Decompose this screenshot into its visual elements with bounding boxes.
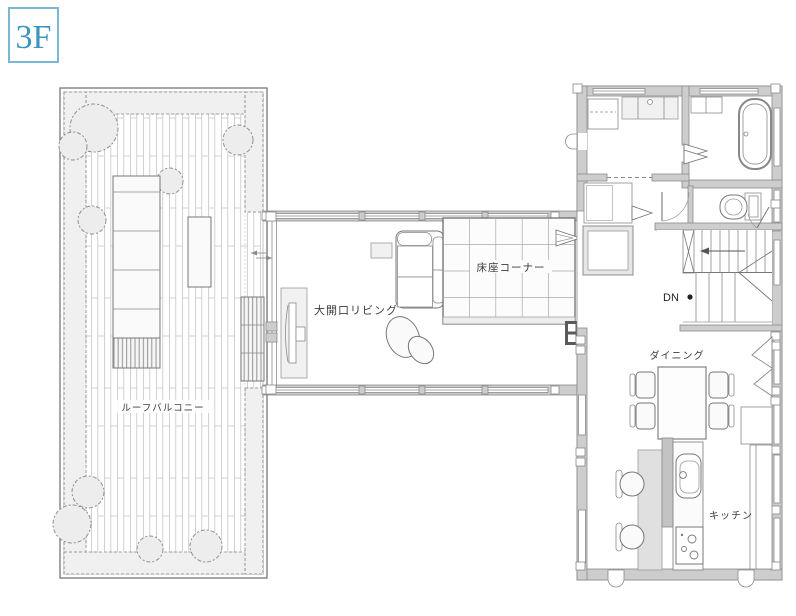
dn-dot (687, 294, 692, 299)
door-bump-icon (738, 570, 754, 587)
bath-counter-icon (691, 97, 722, 113)
staircase: DN (657, 230, 782, 331)
dining-table-icon (658, 367, 706, 439)
dining-chair-icon (630, 372, 655, 398)
floor-seat-label: 床座コーナー (477, 261, 546, 274)
dn-label: DN (663, 292, 679, 304)
bath-wall (682, 86, 689, 145)
stairs-bottom-wall (680, 325, 782, 331)
dining-label: ダイニング (650, 349, 705, 362)
kitchen-sink-icon (676, 454, 701, 498)
stairs-top-wall (655, 223, 782, 230)
closet (583, 226, 633, 275)
floor-badge-label: 3F (16, 19, 52, 56)
outdoor-table-icon (188, 217, 211, 287)
vanity-sink-icon (622, 97, 678, 119)
hall-closet (584, 183, 632, 223)
outdoor-sofa-icon (113, 176, 160, 368)
side-table-icon (371, 243, 392, 258)
balcony-area: ルーフバルコニー (53, 88, 267, 578)
tree-icon (137, 536, 163, 562)
counter-icon (741, 407, 772, 444)
balcony-label: ルーフバルコニー (121, 403, 204, 414)
kitchen-bar-counter (638, 450, 662, 570)
tall-cabinet-icon (750, 445, 772, 569)
tv-board-icon (281, 288, 307, 378)
floor-plan-svg: ルーフバルコニー (0, 0, 796, 616)
west-door-gap (578, 133, 587, 150)
dining-chair-icon (709, 403, 734, 429)
door-bump-icon (608, 570, 624, 587)
living-label: 大開口リビング (314, 303, 398, 317)
dining-chair-icon (630, 403, 655, 429)
hedge-bottom (64, 552, 263, 574)
stove-icon (676, 527, 703, 564)
toilet-icon (720, 193, 761, 220)
floor-badge: 3F (9, 8, 58, 62)
sofa-icon (396, 231, 444, 308)
dining-chair-icon (709, 372, 734, 398)
floor-plan-page: ルーフバルコニー (0, 0, 796, 616)
tree-icon (223, 125, 253, 155)
kitchen-label: キッチン (709, 510, 753, 522)
bathtub-icon (739, 99, 771, 169)
hedge-right-lower (245, 388, 263, 574)
washing-machine-icon (588, 99, 618, 129)
tree-icon (78, 206, 106, 234)
slat-bench-icon (241, 297, 264, 381)
counter-partition (662, 438, 673, 527)
tree-icon (157, 168, 183, 194)
door-bump-icon (566, 134, 578, 149)
tree-icon (190, 530, 222, 562)
stair-floor (657, 230, 772, 325)
stair-newel-hatch (683, 230, 694, 273)
